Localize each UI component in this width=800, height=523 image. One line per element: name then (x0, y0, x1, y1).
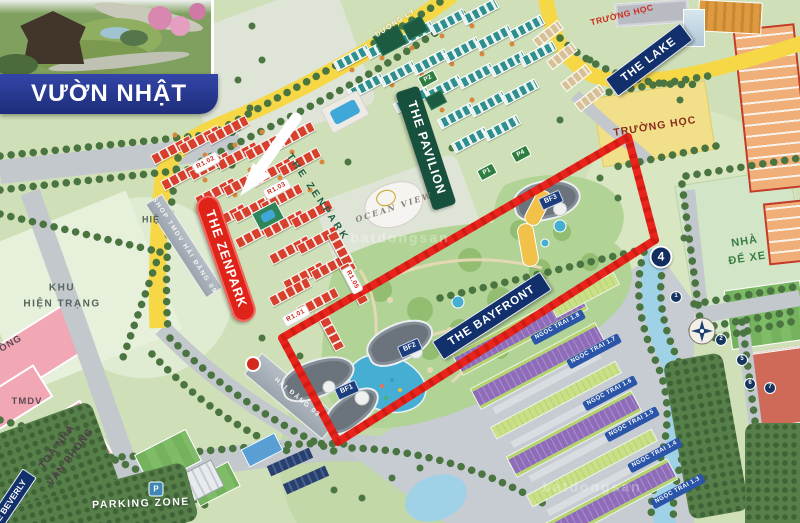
p2: P2 (417, 69, 439, 88)
trail-marker-1: 1 (670, 291, 682, 303)
shop-tmdv-hai-dang: SHOP TMDV HẢI ĐĂNG 09 (150, 196, 218, 295)
pavilion-banner: THE PAVILION (396, 86, 457, 211)
p4: P4 (510, 144, 532, 163)
r1-02: R1.02 (192, 152, 220, 173)
trail-marker-7: 7 (764, 382, 776, 394)
road-duong-ly: ĐƯỜNG LÝ (374, 8, 418, 41)
bayfront-banner: THE BAYFRONT (432, 271, 552, 360)
p1: P1 (476, 162, 498, 181)
parking-icon: P (149, 482, 164, 497)
photo-blossom (148, 6, 172, 30)
ngoc-trai-17: NGỌC TRAI 1.7 (566, 333, 622, 369)
photo-blossom-2 (170, 16, 190, 36)
bf3: BF3 (538, 189, 564, 210)
garden-title-banner: VƯỜN NHẬT (0, 74, 218, 114)
nha-de-xe: NHÀ ĐỂ XE (725, 231, 768, 270)
watermark-bottom: batdongsan (542, 478, 641, 496)
parking-zone: PARKING ZONE (92, 496, 190, 513)
ngoc-trai-16: NGỌC TRAI 1.6 (582, 375, 638, 411)
bf2: BF2 (397, 337, 423, 358)
garden-photo-inset (0, 0, 214, 76)
r1-01: R1.01 (282, 305, 310, 326)
toa-nha-van-phong: TOÀ NHÀ VĂN PHÒNG (29, 414, 98, 490)
the-lake-banner: THE LAKE (605, 23, 693, 97)
zenpark-banner: THE ZENPARK (193, 192, 259, 325)
zenpark-street-text: THE ZENPARK (283, 152, 351, 245)
garden-title: VƯỜN NHẬT (31, 80, 187, 108)
photo-bush-2 (120, 30, 148, 46)
trail-marker-6: 6 (744, 378, 756, 390)
photo-blossom-3 (189, 3, 206, 20)
masterplan-map: ĐƯỜNG LÝTRƯỜNG HỌCTHE LAKETRƯỜNG HỌCNHÀ … (0, 0, 800, 523)
photo-bush (0, 54, 38, 76)
ocean-view: OCEAN VIEW (354, 190, 434, 224)
ngoc-trai-18: NGỌC TRAI 1.8 (530, 309, 586, 345)
bf1: BF1 (334, 379, 360, 400)
ngoc-trai-15: NGỌC TRAI 1.5 (604, 406, 660, 442)
truong-hoc-north: TRƯỜNG HỌC (589, 2, 654, 28)
r1-05: R1.05 (341, 266, 362, 294)
r1-03: R1.03 (263, 178, 291, 199)
van-phong-partial: ỒNG (0, 333, 25, 356)
ngoc-trai-13: NGỌC TRAI 1.3 (650, 473, 706, 509)
truong-hoc-east: TRƯỜNG HỌC (613, 114, 698, 140)
khu-hien-trang: KHU HIỆN TRẠNG (23, 281, 100, 312)
trail-marker-2: 2 (715, 334, 727, 346)
hai-dang-03: HẢI ĐĂNG 03 (272, 376, 321, 419)
watermark-center: batdongsan (350, 229, 449, 247)
gate-marker-4: 4 (650, 246, 673, 269)
trail-marker-5: 5 (736, 354, 748, 366)
ngoc-trai-14: NGỌC TRAI 1.4 (627, 437, 683, 473)
tmdv: TMDV (12, 396, 43, 408)
the-beverly-banner: THE BEVERLY (0, 469, 36, 523)
hien-trang-partial: HIỆ (142, 214, 160, 225)
